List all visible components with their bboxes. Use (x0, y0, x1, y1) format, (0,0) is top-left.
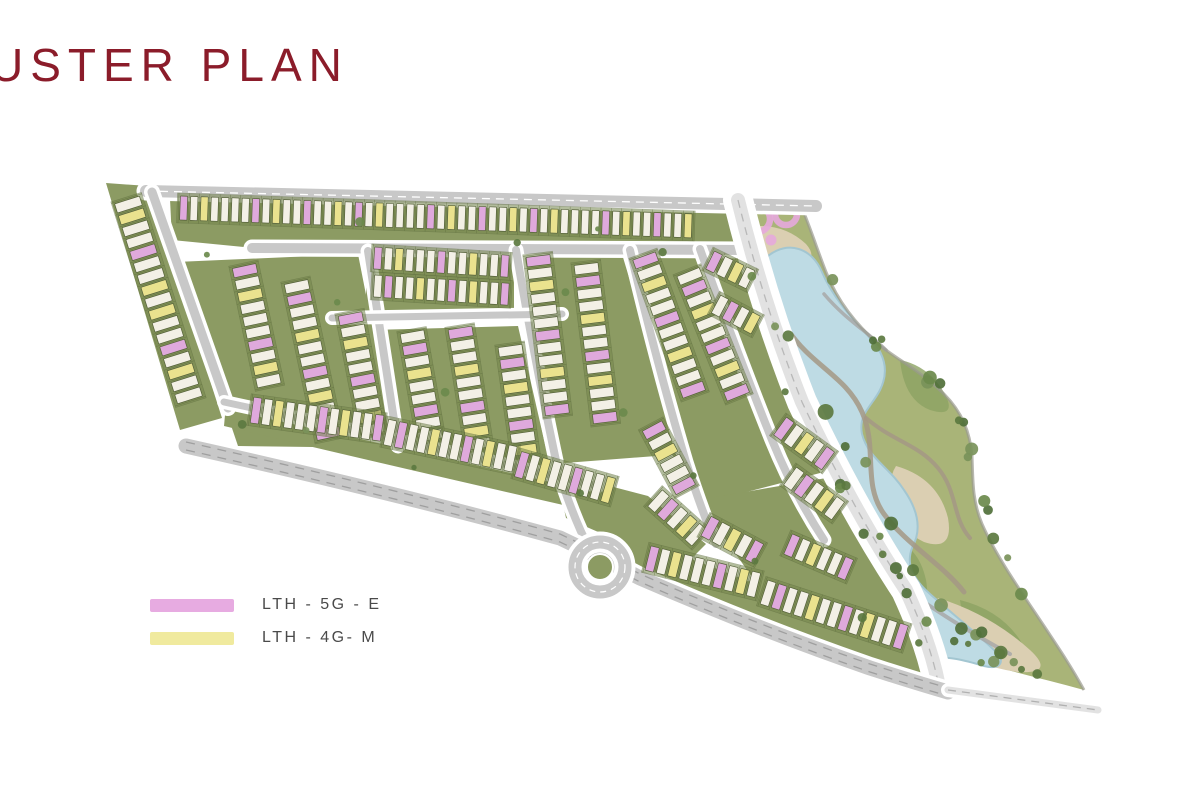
tree (923, 371, 937, 385)
tree (619, 408, 628, 417)
townhouse-unit (602, 211, 610, 235)
townhouse-unit (581, 210, 589, 234)
townhouse-unit (490, 282, 499, 304)
townhouse-unit (416, 204, 424, 228)
townhouse-unit (426, 250, 435, 272)
tree (858, 613, 867, 622)
tree (950, 637, 958, 645)
townhouse-unit (500, 255, 509, 277)
townhouse-unit (200, 197, 208, 221)
tree (782, 388, 789, 395)
legend-label-lth-5g-e: LTH - 5G - E (262, 596, 382, 614)
townhouse-unit (437, 251, 446, 273)
tree (869, 336, 877, 344)
townhouse-unit (458, 280, 467, 302)
tree (334, 299, 341, 306)
tree (771, 322, 779, 330)
tree (783, 330, 794, 341)
townhouse-unit (375, 203, 383, 227)
townhouse-unit (468, 206, 476, 230)
townhouse-unit (447, 252, 456, 274)
townhouse-unit (416, 250, 425, 272)
tree (965, 641, 971, 647)
tree (562, 288, 570, 296)
tree (977, 659, 984, 666)
tree (747, 272, 756, 281)
townhouse-unit (416, 278, 425, 300)
townhouse-unit (384, 276, 393, 298)
townhouse-unit (479, 281, 488, 303)
tree (995, 648, 1006, 659)
legend-swatch-pink (150, 599, 234, 612)
legend-item-lth-5g-e: LTH - 5G - E (150, 595, 382, 615)
tree (827, 274, 838, 285)
townhouse-unit (324, 201, 332, 225)
townhouse-unit (334, 201, 342, 225)
tree (1018, 666, 1025, 673)
townhouse-unit (365, 202, 373, 226)
tree (303, 427, 309, 433)
townhouse-unit (447, 205, 455, 229)
townhouse-unit (180, 196, 188, 220)
tree (841, 481, 850, 490)
townhouse-unit (231, 198, 239, 222)
townhouse-unit (373, 247, 382, 269)
road (332, 314, 562, 318)
townhouse-unit (612, 211, 620, 235)
tree (355, 217, 364, 226)
townhouse-unit (210, 197, 218, 221)
tree (690, 472, 697, 479)
townhouse-unit (622, 211, 630, 235)
townhouse-unit (283, 200, 291, 224)
tree (514, 239, 521, 246)
townhouse-unit (490, 254, 499, 276)
townhouse-unit (426, 278, 435, 300)
tree (595, 226, 600, 231)
townhouse-unit (458, 206, 466, 230)
townhouse-unit (571, 210, 579, 234)
townhouse-unit (427, 205, 435, 229)
tree (204, 252, 210, 258)
townhouse-unit (385, 203, 393, 227)
tree (921, 616, 931, 626)
tree (876, 533, 883, 540)
tree (884, 517, 898, 531)
legend-item-lth-4g-m: LTH - 4G- M (150, 628, 382, 648)
townhouse-unit (303, 200, 311, 224)
townhouse-unit (447, 280, 456, 302)
townhouse-unit (406, 204, 414, 228)
tree (659, 248, 667, 256)
townhouse-unit (458, 252, 467, 274)
tree (1015, 588, 1028, 601)
tree (878, 335, 885, 342)
townhouse-unit (540, 209, 548, 233)
tree (955, 622, 968, 635)
tree (441, 388, 450, 397)
tree (1032, 669, 1042, 679)
master-plan-map (0, 0, 1200, 800)
townhouse-unit (396, 204, 404, 228)
townhouse-unit (479, 253, 488, 275)
legend: LTH - 5G - E LTH - 4G- M (150, 595, 382, 648)
townhouse-unit (405, 277, 414, 299)
townhouse-unit (384, 248, 393, 270)
tree (907, 564, 919, 576)
townhouse-unit (643, 212, 651, 236)
townhouse-unit (509, 208, 517, 232)
townhouse-unit (313, 201, 321, 225)
tree (841, 442, 850, 451)
townhouse-unit (550, 209, 558, 233)
legend-swatch-yellow (150, 632, 234, 645)
townhouse-unit (344, 202, 352, 226)
tree (901, 588, 911, 598)
townhouse-unit (190, 196, 198, 220)
tree (238, 420, 247, 429)
tree (577, 489, 584, 496)
road (252, 248, 746, 250)
townhouse-unit (469, 281, 478, 303)
tree (751, 558, 758, 565)
tree (976, 626, 987, 637)
townhouse-unit (653, 213, 661, 237)
tree (860, 457, 871, 468)
cluster-plan-page: USTER PLAN LTH - 5G - E LTH - 4G- M (0, 0, 1200, 800)
townhouse-unit (488, 207, 496, 231)
tree (915, 639, 922, 646)
tree (879, 550, 887, 558)
townhouse-unit (293, 200, 301, 224)
tree (411, 465, 416, 470)
townhouse-unit (241, 198, 249, 222)
townhouse-unit (469, 253, 478, 275)
townhouse-unit (437, 205, 445, 229)
townhouse-unit (478, 206, 486, 230)
tree (965, 443, 978, 456)
tree (859, 529, 869, 539)
townhouse-unit (252, 199, 260, 223)
townhouse-unit (221, 197, 229, 221)
townhouse-unit (394, 248, 403, 270)
townhouse-unit (633, 212, 641, 236)
townhouse-unit (519, 208, 527, 232)
tree (890, 562, 902, 574)
tree (1004, 554, 1011, 561)
tree (934, 598, 948, 612)
townhouse-unit (394, 276, 403, 298)
townhouse-unit (560, 209, 568, 233)
townhouse-unit (405, 249, 414, 271)
townhouse-unit (663, 213, 671, 237)
tree (955, 416, 963, 424)
tree (978, 495, 990, 507)
townhouse-unit (272, 199, 280, 223)
tree (818, 404, 834, 420)
townhouse-unit (530, 208, 538, 232)
townhouse-unit (674, 213, 682, 237)
townhouse-unit (437, 279, 446, 301)
tree (1010, 658, 1018, 666)
townhouse-unit (500, 283, 509, 305)
townhouse-unit (684, 214, 692, 238)
tree (987, 533, 999, 545)
townhouse-unit (499, 207, 507, 231)
legend-label-lth-4g-m: LTH - 4G- M (262, 629, 377, 647)
townhouse-unit (373, 275, 382, 297)
townhouse-unit (262, 199, 270, 223)
